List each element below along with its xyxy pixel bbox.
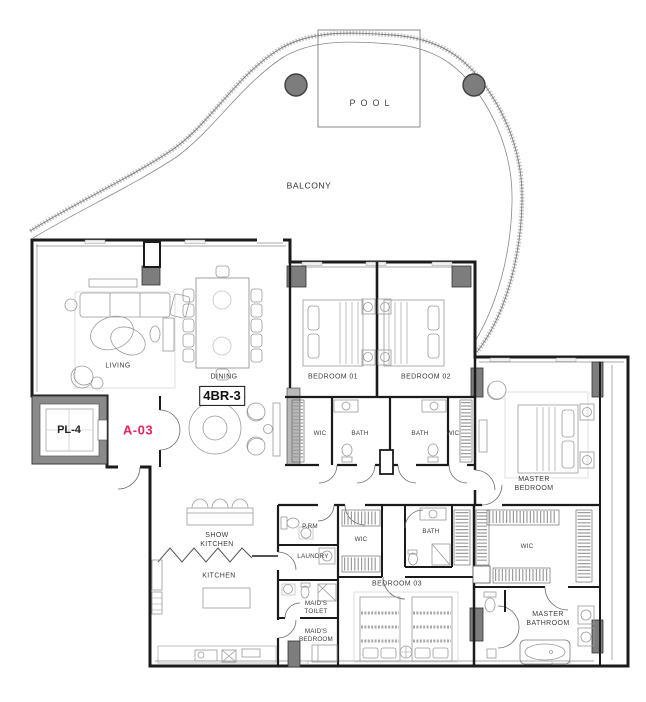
column-circle	[463, 74, 485, 96]
kitchen-label: KITCHEN	[202, 571, 236, 580]
balcony-columns	[285, 74, 485, 96]
bedroom-03-label: BEDROOM 03	[372, 579, 422, 588]
maids-bedroom-label: MAID'S BEDROOM	[292, 628, 340, 644]
column-circle	[285, 74, 307, 96]
floor-plan-drawing	[0, 0, 646, 702]
unit-type-label: 4BR-3	[199, 386, 245, 406]
wic-bedroom03-label: WIC	[355, 536, 368, 544]
master-bathroom-label: MASTER BATHROOM	[519, 610, 577, 628]
pool-outline	[318, 30, 420, 127]
floor-plan: POOL BALCONY LIVING DINING 4BR-3 BEDROOM…	[0, 0, 646, 702]
bedroom-01-label: BEDROOM 01	[308, 372, 358, 381]
show-kitchen-label: SHOW KITCHEN	[195, 531, 239, 549]
master-bedroom-label: MASTER BEDROOM	[506, 475, 562, 493]
dining-label: DINING	[211, 372, 238, 381]
laundry-label: LAUNDRY	[297, 553, 328, 561]
pool-label: POOL	[349, 98, 394, 110]
wic-bedroom02-label: WIC	[447, 430, 460, 438]
living-label: LIVING	[105, 361, 130, 370]
maids-toilet-label: MAID'S TOILET	[298, 600, 334, 616]
bedroom-02-label: BEDROOM 02	[401, 372, 451, 381]
elevator-label: PL-4	[57, 423, 81, 437]
balcony-label: BALCONY	[287, 180, 332, 191]
entry-south-gap	[118, 463, 140, 470]
bath-bedroom03-label: BATH	[422, 528, 439, 536]
master-wic-label: WIC	[521, 543, 534, 551]
duct-shaft	[144, 242, 160, 267]
bath-bedroom01-label: BATH	[351, 430, 368, 438]
unit-number-label: A-03	[123, 423, 153, 440]
wic-bedroom01-label: WIC	[314, 430, 327, 438]
bath-bedroom02-label: BATH	[411, 430, 428, 438]
powder-room-label: P.RM	[302, 523, 318, 531]
